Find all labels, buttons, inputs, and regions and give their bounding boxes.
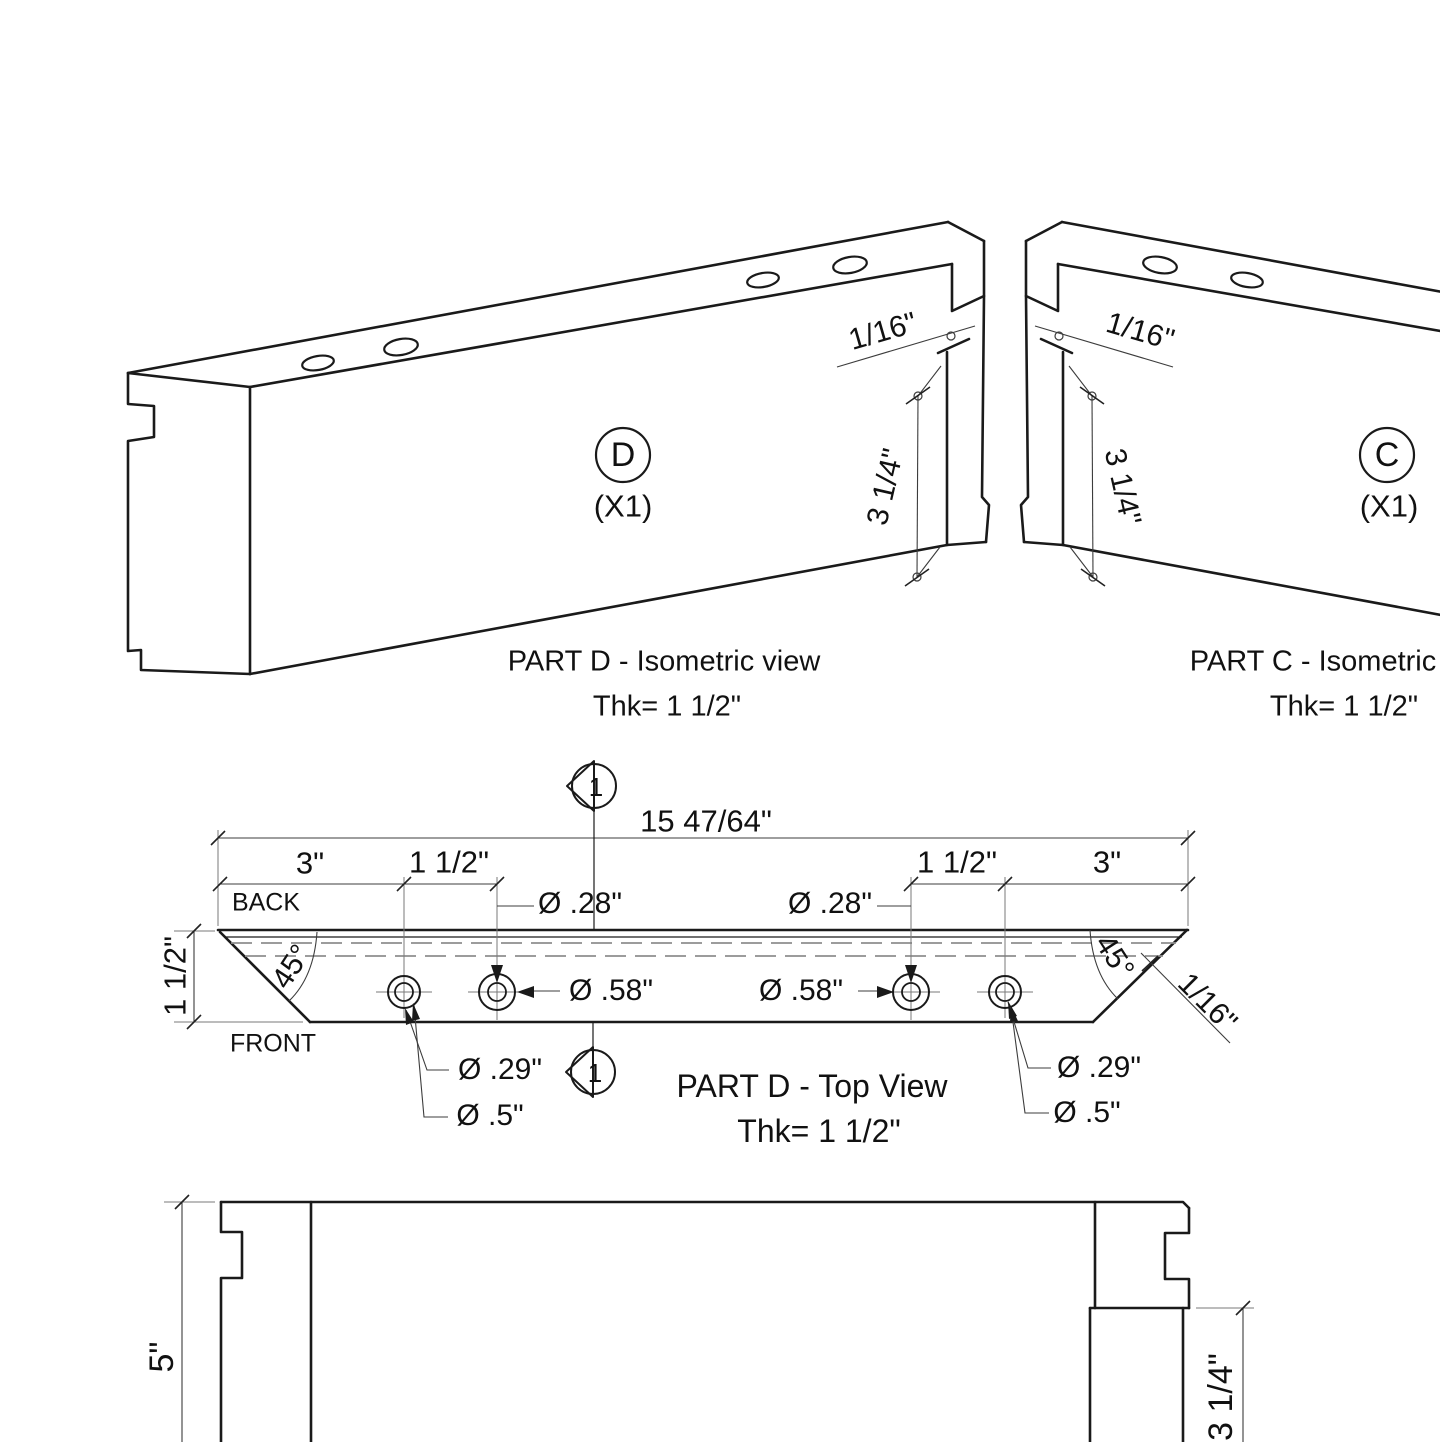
drawing-sheet: 1/16" 3 1/4" D (X1) PART D - Isometric v… — [0, 0, 1440, 1442]
tv-dia29-left: Ø .29" — [458, 1055, 542, 1085]
tv-dia28-right: Ø .28" — [788, 889, 872, 919]
front-view-outline — [221, 1202, 1189, 1442]
iso-d-balloon-label: D — [611, 438, 636, 472]
tv-caption: PART D - Top View — [677, 1070, 948, 1102]
tv-dia5-left: Ø .5" — [456, 1101, 523, 1131]
tv-overall-dim: 15 47/64" — [640, 806, 772, 837]
iso-c-balloon-label: C — [1375, 438, 1400, 472]
iso-c-caption: PART C - Isometric view — [1190, 648, 1440, 677]
iso-c-qty-label: (X1) — [1360, 491, 1419, 522]
tv-dia58-right: Ø .58" — [759, 976, 843, 1006]
tv-dia5-right: Ø .5" — [1053, 1098, 1120, 1128]
tv-dia58-left: Ø .58" — [569, 976, 653, 1006]
tv-front-label: FRONT — [230, 1032, 316, 1057]
tv-thickness-note: Thk= 1 1/2" — [737, 1115, 900, 1147]
tv-dia29-right: Ø .29" — [1057, 1053, 1141, 1083]
section-marker-top-label: 1 — [589, 774, 603, 800]
section-marker-bottom-label: 1 — [588, 1060, 602, 1086]
fv-tenon-dim: 3 1/4" — [1204, 1353, 1238, 1441]
iso-c-thickness: Thk= 1 1/2" — [1270, 693, 1418, 722]
fv-height-dim: 5" — [145, 1342, 179, 1373]
tv-3in-right-dim: 3" — [1093, 847, 1121, 878]
tv-1half-left-dim: 1 1/2" — [409, 847, 489, 878]
tv-back-label: BACK — [232, 891, 300, 916]
top-view-holes — [376, 964, 1033, 1020]
iso-d-caption: PART D - Isometric view — [508, 648, 821, 677]
top-view-outline — [218, 930, 1188, 1022]
tv-thickness-dim: 1 1/2" — [160, 936, 191, 1016]
tv-3in-left-dim: 3" — [296, 848, 324, 879]
part-d-isometric-outline — [128, 222, 989, 674]
tv-1half-right-dim: 1 1/2" — [917, 847, 997, 878]
iso-d-qty-label: (X1) — [594, 491, 653, 522]
tv-dia28-left: Ø .28" — [538, 889, 622, 919]
iso-d-thickness: Thk= 1 1/2" — [593, 693, 741, 722]
